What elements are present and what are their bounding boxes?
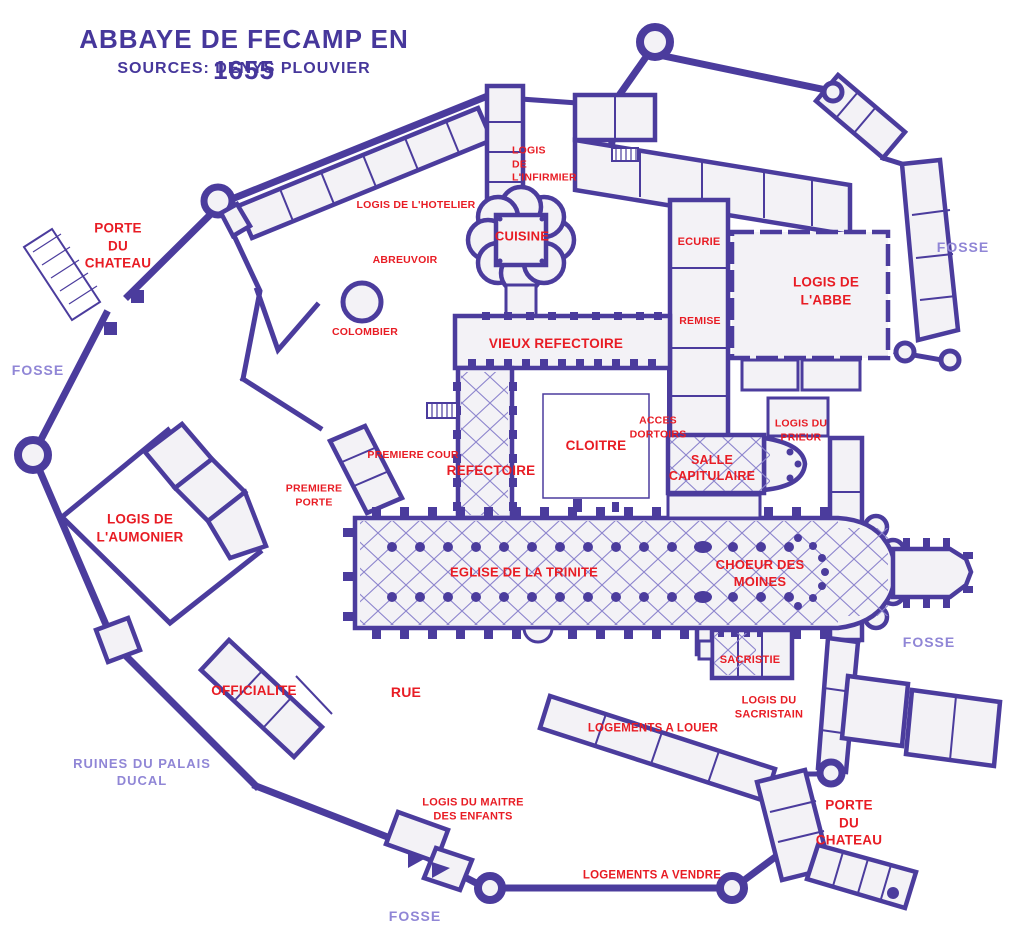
plan-label-porte-du-chateau-west: PORTE DU CHATEAU [85,220,151,273]
plan-label-logis-de-l-hotelier: LOGIS DE L'HOTELIER [357,199,476,213]
plan-label-fosse-west: FOSSE [12,361,64,379]
plan-label-abreuvoir: ABREUVOIR [373,254,438,268]
plan-label-premiere-porte: PREMIERE PORTE [286,482,342,509]
plan-label-fosse-south: FOSSE [389,907,441,925]
plan-label-logis-de-l-infirmier: LOGIS DE L'INFIRMIER [512,145,577,186]
plan-label-cloitre: CLOITRE [566,437,627,455]
plan-label-rue: RUE [391,683,421,701]
plan-label-porte-du-chateau-southeast: PORTE DU CHATEAU [816,797,882,850]
plan-label-logis-du-maitre-des-enfants: LOGIS DU MAITRE DES ENFANTS [422,796,523,825]
plan-label-eglise-de-la-trinite: EGLISE DE LA TRINITE [450,565,598,582]
refectoire-building [427,368,517,518]
plan-label-logis-du-sacristain: LOGIS DU SACRISTAIN [735,694,803,723]
plan-label-vieux-refectoire: VIEUX REFECTOIRE [489,335,623,353]
plan-label-remise: REMISE [679,315,720,329]
sacristain-buildings [818,638,1000,772]
plan-label-colombier: COLOMBIER [332,326,398,340]
dovecote [343,283,381,321]
plan-label-fosse-northeast: FOSSE [937,238,989,256]
plan-label-logis-du-prieur: LOGIS DU PRIEUR [775,417,827,444]
plan-label-officialite: OFFICIALITE [211,682,296,700]
plan-label-logis-de-l-aumonier: LOGIS DE L'AUMONIER [97,510,184,545]
plan-label-choeur-des-moines: CHOEUR DES MOINES [716,557,805,591]
plan-label-premiere-cour: PREMIERE COUR [367,449,458,463]
plan-label-logements-a-louer: LOGEMENTS A LOUER [588,722,718,737]
plan-label-fosse-east: FOSSE [903,633,955,651]
plan-label-ecurie: ECURIE [678,235,721,249]
northwest-range [238,108,492,238]
map-subtitle: SOURCES: DENYS PLOUVIER [48,60,440,78]
plan-label-acces-dortoirs: ACCES DORTOIRS [630,414,687,441]
plan-label-logis-de-l-abbe: LOGIS DE L'ABBE [793,273,859,308]
plan-label-ruines-du-palais-ducal: RUINES DU PALAIS DUCAL [73,756,211,790]
abbey-church [343,494,973,654]
plan-label-logements-a-vendre: LOGEMENTS A VENDRE [583,869,721,884]
logis-de-l-abbe-building [732,232,888,390]
plan-label-salle-capitulaire: SALLE CAPITULAIRE [669,452,755,485]
plan-label-cuisine: CUISINE [495,229,549,246]
plan-label-refectoire: REFECTOIRE [447,462,536,480]
kitchen-octofoil [468,187,574,321]
plan-label-sacristie: SACRISTIE [720,653,780,667]
abbey-plan-page: ABBAYE DE FECAMP EN 1655 SOURCES: DENYS … [0,0,1024,945]
